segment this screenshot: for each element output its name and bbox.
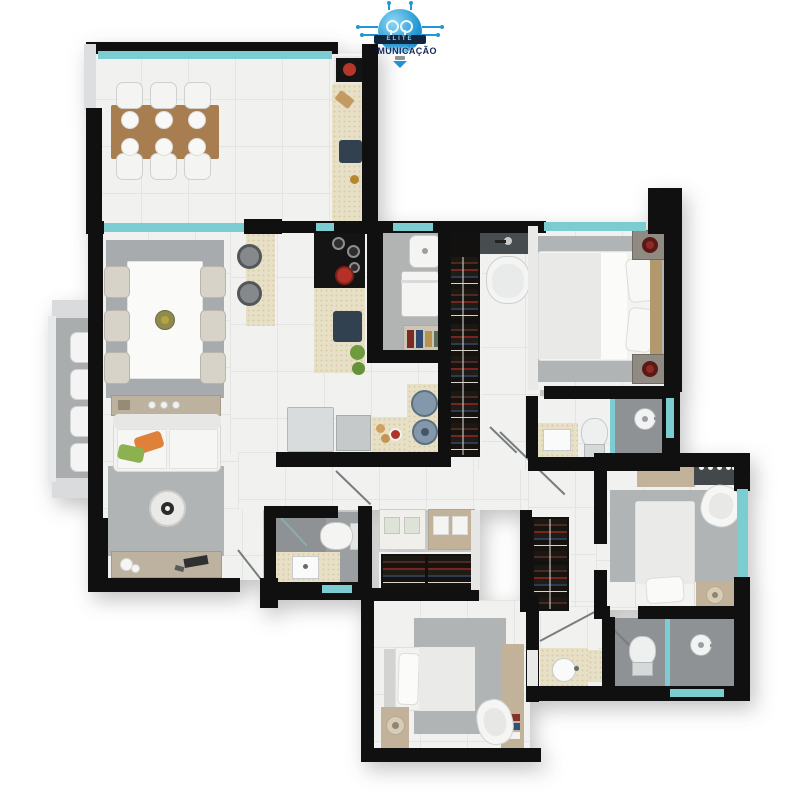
balcony-chair	[184, 153, 211, 180]
sideboard-decor	[160, 401, 168, 409]
socialbath-faucet	[303, 564, 308, 569]
plate	[121, 138, 139, 156]
folded-towels	[404, 517, 420, 534]
bath2-shower-center	[698, 642, 704, 648]
closet-rail	[462, 257, 464, 455]
wall	[88, 578, 240, 592]
balcony-chair	[116, 82, 143, 109]
bar-stool	[237, 244, 262, 269]
wall	[734, 453, 750, 491]
sideboard-item	[118, 400, 130, 410]
dining-chair	[104, 352, 130, 384]
fridge	[287, 407, 334, 452]
bath2-floor	[606, 618, 738, 690]
wall	[664, 232, 682, 392]
bed3-pillow	[397, 653, 420, 706]
blue-bowl-center	[421, 428, 429, 436]
bread	[376, 424, 385, 433]
kitchen-sink	[333, 311, 362, 342]
bar-stool	[237, 281, 262, 306]
wall	[638, 606, 750, 619]
decor-bowl-center	[646, 365, 654, 373]
sofa-back	[113, 414, 221, 429]
divider	[471, 510, 480, 590]
balcony-chair	[150, 82, 177, 109]
fruit-bowl	[350, 175, 359, 184]
shower-head-center	[642, 416, 648, 422]
sideboard-decor	[148, 401, 156, 409]
vanity2-faucet	[574, 666, 579, 671]
wall	[361, 588, 479, 601]
bath2-shower-glass	[665, 616, 670, 688]
wall	[86, 108, 102, 234]
masterbath-sink	[543, 429, 571, 451]
wall	[594, 466, 607, 544]
wall	[88, 230, 103, 528]
ac-balcony-cap-top	[52, 300, 90, 320]
burner	[347, 245, 360, 258]
door-panel	[527, 650, 538, 688]
bath2-ledge	[588, 650, 602, 682]
bed2-pillow	[645, 576, 685, 605]
wall	[361, 748, 541, 762]
wall	[594, 570, 607, 608]
window-glass	[98, 51, 332, 59]
bbq-sink	[339, 140, 362, 163]
dining-chair	[200, 266, 226, 298]
floorplan-render: ELITE COMUNICAÇÃO	[0, 0, 800, 800]
wall	[648, 188, 682, 234]
plate	[155, 111, 173, 129]
red-pot	[335, 266, 354, 285]
washer-panel	[401, 280, 439, 283]
wall	[86, 221, 104, 234]
vanity2-basin	[552, 658, 576, 682]
divider	[528, 226, 538, 390]
plate	[188, 111, 206, 129]
wall	[734, 577, 750, 701]
laundry-tub-drain	[422, 248, 428, 254]
sofa-cushion	[169, 429, 218, 469]
faucet-spout	[495, 240, 506, 243]
window-glass	[393, 223, 433, 231]
master-bed-sheet	[601, 253, 627, 359]
headboard	[650, 256, 662, 360]
plate	[121, 111, 139, 129]
balcony-chair	[116, 153, 143, 180]
dining-chair	[200, 310, 226, 342]
folded-towels	[384, 517, 400, 534]
burner	[332, 237, 345, 250]
ac-balcony-cap-bottom	[52, 478, 90, 498]
closet-clothes	[428, 556, 471, 586]
dining-chair	[200, 352, 226, 384]
bath2-shower-arm	[710, 644, 734, 647]
wall	[276, 452, 450, 467]
bed3-headboard	[384, 649, 395, 707]
plan-shapes	[0, 0, 800, 800]
window-glass	[670, 689, 724, 697]
plant	[350, 345, 365, 360]
wall	[594, 453, 750, 467]
folded-towels	[452, 516, 468, 535]
sideboard-decor	[172, 401, 180, 409]
shelf-item	[416, 330, 423, 348]
parapet	[84, 44, 96, 110]
shelf-item	[425, 331, 432, 347]
plate	[188, 138, 206, 156]
window-glass	[737, 489, 748, 579]
decor-bowl-center	[646, 241, 654, 249]
wall	[438, 224, 451, 467]
grill-coals	[343, 63, 356, 76]
closet-rail	[549, 519, 551, 609]
centerpiece-center	[161, 316, 169, 324]
wall	[361, 588, 374, 762]
wall	[520, 510, 532, 612]
window-glass	[104, 223, 244, 232]
coffee-table-dot	[165, 506, 170, 511]
wall	[526, 396, 538, 458]
master-bed-duvet	[539, 253, 601, 359]
shelf-item	[407, 330, 414, 348]
wall	[544, 386, 670, 399]
ac-balcony-edge	[48, 316, 56, 482]
bed3-duvet	[419, 647, 475, 711]
window-glass	[544, 222, 646, 231]
balcony-chair	[150, 153, 177, 180]
blue-bowl	[411, 390, 438, 417]
dining-chair	[104, 266, 130, 298]
red-jar	[389, 428, 402, 441]
wall	[602, 617, 615, 691]
wall	[362, 44, 378, 234]
shower-glass	[610, 394, 615, 460]
plant	[352, 362, 365, 375]
closet-clothes	[383, 556, 425, 586]
window-glass	[322, 585, 352, 593]
window-glass	[666, 398, 674, 438]
bed2-duvet	[636, 502, 694, 584]
dishwasher	[336, 415, 371, 451]
toilet-seat	[492, 264, 524, 298]
bed2-lamp-center	[712, 592, 718, 598]
folded-towels	[433, 516, 449, 535]
bed3-lamp-center	[392, 722, 399, 729]
plate	[155, 138, 173, 156]
socialbath-toilet	[320, 522, 353, 550]
balcony-chair	[184, 82, 211, 109]
window-glass	[316, 223, 334, 231]
wall	[367, 224, 383, 360]
bath2-toilet-tank	[632, 662, 653, 676]
console-vase	[131, 564, 140, 573]
washing-machine	[401, 271, 439, 317]
dining-chair	[104, 310, 130, 342]
